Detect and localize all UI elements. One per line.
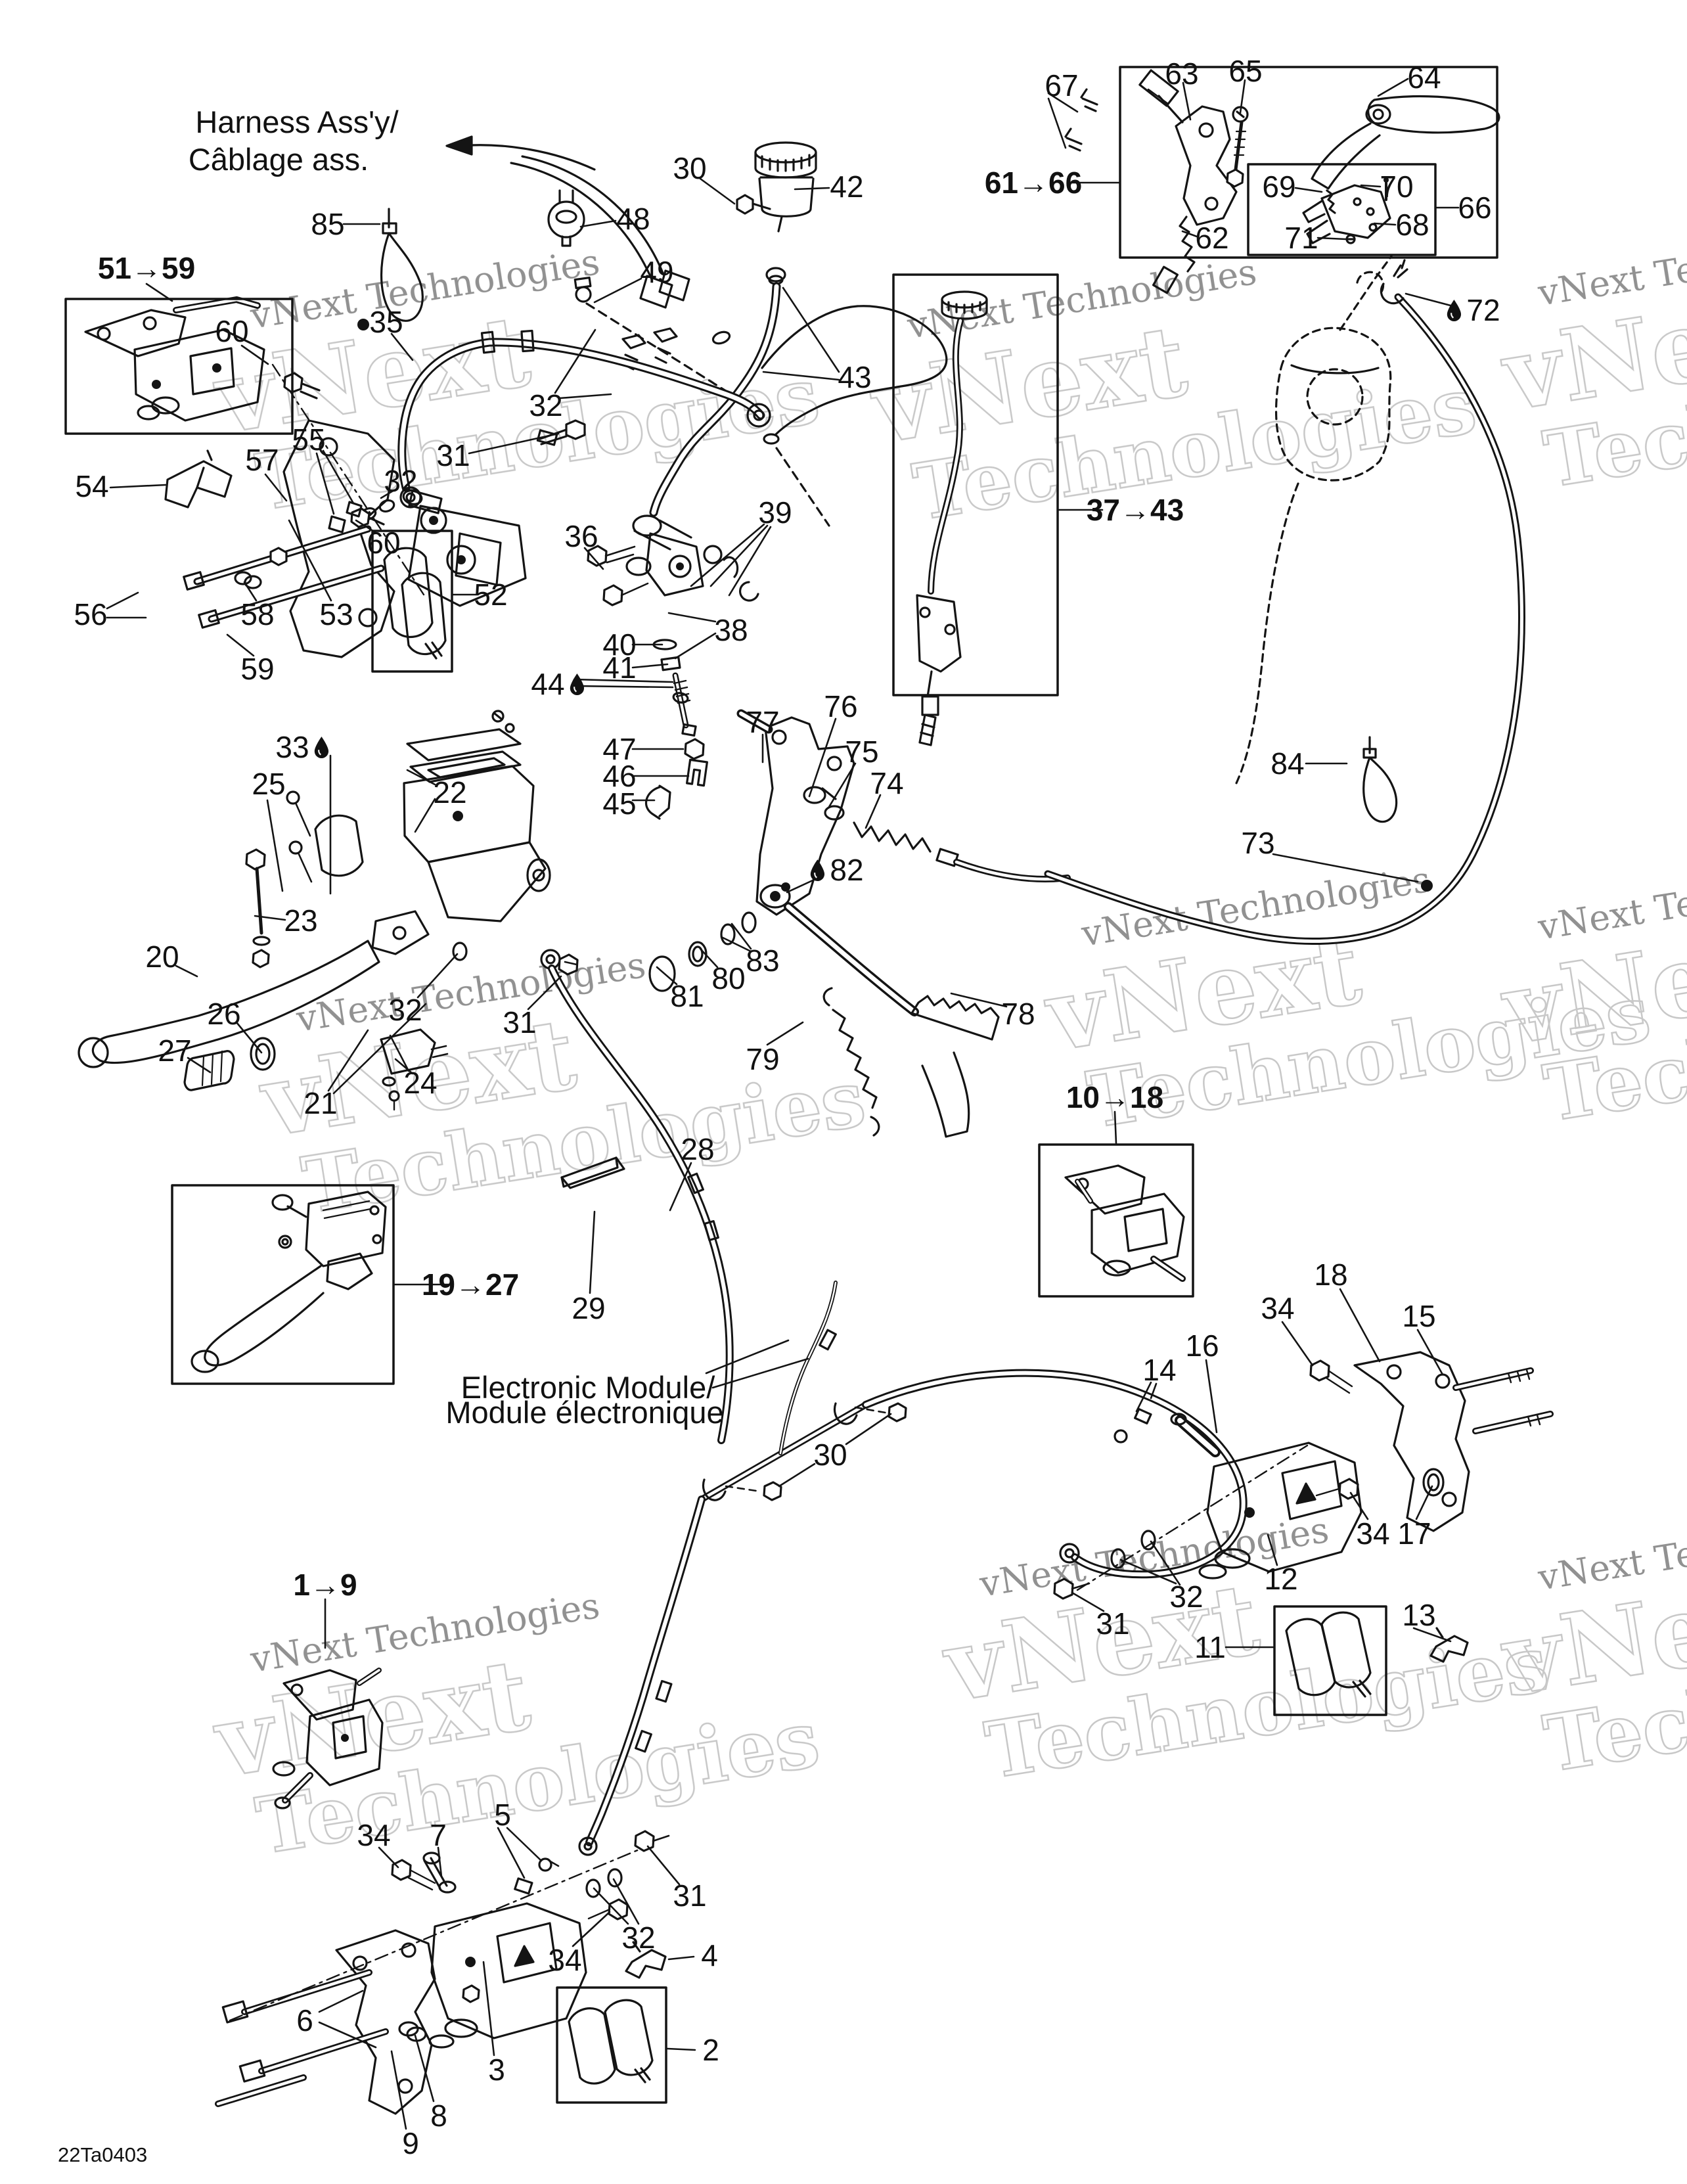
part-label-80: 80 bbox=[711, 963, 745, 993]
part-label-63: 63 bbox=[1165, 58, 1198, 89]
part-label-39: 39 bbox=[758, 497, 792, 528]
module-line-art bbox=[702, 1283, 1244, 1574]
watermark-5: vNext TechnologiesvNextTechnologies bbox=[1488, 821, 1687, 1144]
clip-54-art bbox=[166, 451, 231, 507]
part-label-33: 33 bbox=[275, 732, 330, 762]
part-label-43: 43 bbox=[838, 362, 871, 392]
oil-droplet-icon bbox=[1445, 299, 1462, 321]
oil-droplet-icon bbox=[809, 859, 826, 881]
part-label-14: 14 bbox=[1142, 1355, 1176, 1385]
part-label-48: 48 bbox=[616, 204, 650, 234]
part-label-62: 62 bbox=[1195, 223, 1228, 253]
part-label-21: 21 bbox=[304, 1088, 337, 1118]
watermark-2: vNext TechnologiesvNextTechnologies bbox=[1488, 187, 1687, 510]
part-label-16: 16 bbox=[1185, 1331, 1219, 1361]
part-label-35: 35 bbox=[369, 307, 403, 337]
part-label-83: 83 bbox=[746, 945, 779, 976]
part-label-31c: 31 bbox=[1096, 1608, 1129, 1639]
part-label-29: 29 bbox=[572, 1293, 605, 1323]
oil-droplet-icon bbox=[569, 673, 586, 695]
part-label-8: 8 bbox=[430, 2101, 447, 2131]
watermark-0: vNext TechnologiesvNextTechnologies bbox=[200, 210, 825, 533]
part-label-31d: 31 bbox=[673, 1880, 706, 1911]
pads-52-art bbox=[384, 548, 445, 658]
part-label-17: 17 bbox=[1397, 1518, 1431, 1549]
part-label-74: 74 bbox=[870, 768, 903, 798]
part-label-34c: 34 bbox=[357, 1820, 390, 1850]
part-label-26: 26 bbox=[207, 999, 240, 1029]
part-label-30a: 30 bbox=[673, 153, 706, 183]
part-label-15: 15 bbox=[1402, 1301, 1435, 1331]
part-label-34b: 34 bbox=[1356, 1518, 1389, 1549]
part-label-13: 13 bbox=[1402, 1600, 1435, 1630]
part-label-72: 72 bbox=[1445, 295, 1500, 325]
part-label-4: 4 bbox=[701, 1940, 718, 1970]
diagram-artwork: vNext TechnologiesvNextTechnologiesvNext… bbox=[0, 0, 1687, 2184]
part-label-67: 67 bbox=[1045, 70, 1078, 101]
part-label-49: 49 bbox=[640, 257, 673, 287]
front-caliper-bottom-art bbox=[218, 1831, 669, 2114]
part-label-81: 81 bbox=[670, 981, 704, 1011]
part-label-37-43: 37→43 bbox=[1087, 495, 1184, 525]
harness-title-line2: Câblage ass. bbox=[189, 142, 369, 177]
part-label-34a: 34 bbox=[1261, 1293, 1294, 1323]
part-label-78: 78 bbox=[1001, 999, 1035, 1029]
part-label-24: 24 bbox=[403, 1068, 437, 1098]
part-label-77: 77 bbox=[746, 707, 779, 737]
part-label-73: 73 bbox=[1241, 828, 1274, 858]
part-label-54: 54 bbox=[75, 471, 108, 501]
part-label-32a: 32 bbox=[529, 390, 562, 421]
part-label-1-9: 1→9 bbox=[293, 1570, 357, 1600]
part-label-79: 79 bbox=[746, 1044, 779, 1074]
part-label-2: 2 bbox=[702, 2035, 719, 2065]
part-label-11: 11 bbox=[1194, 1632, 1226, 1662]
part-label-53: 53 bbox=[319, 599, 353, 629]
part-label-85: 85 bbox=[311, 209, 344, 239]
part-label-64: 64 bbox=[1407, 62, 1441, 93]
part-label-42: 42 bbox=[830, 171, 863, 202]
watermark-8: vNext TechnologiesvNextTechnologies bbox=[1488, 1472, 1687, 1794]
part-label-58: 58 bbox=[240, 599, 274, 629]
part-label-12: 12 bbox=[1264, 1564, 1297, 1594]
part-label-84: 84 bbox=[1271, 748, 1304, 779]
switch-48-art bbox=[549, 191, 584, 246]
part-label-44: 44 bbox=[531, 669, 585, 699]
part-label-60b: 60 bbox=[367, 528, 400, 558]
part-label-20: 20 bbox=[145, 942, 179, 972]
part-label-70: 70 bbox=[1380, 171, 1413, 202]
part-label-61-66: 61→66 bbox=[985, 168, 1082, 198]
part-label-68: 68 bbox=[1395, 210, 1429, 240]
part-label-7: 7 bbox=[430, 1820, 447, 1850]
part-label-22: 22 bbox=[433, 777, 466, 808]
part-label-5: 5 bbox=[494, 1800, 511, 1830]
part-label-56: 56 bbox=[74, 599, 107, 629]
harness-title-line1: Harness Ass'y/ bbox=[195, 104, 398, 140]
part-label-3: 3 bbox=[488, 2055, 505, 2085]
part-label-32b: 32 bbox=[384, 466, 417, 496]
part-label-32e: 32 bbox=[621, 1922, 655, 1953]
part-label-31b: 31 bbox=[503, 1007, 536, 1037]
parking-housing-art bbox=[1236, 256, 1391, 783]
part-label-59: 59 bbox=[240, 654, 274, 684]
part-label-32c: 32 bbox=[388, 995, 422, 1025]
part-label-57: 57 bbox=[245, 445, 279, 475]
part-label-18: 18 bbox=[1314, 1260, 1347, 1290]
part-label-76: 76 bbox=[824, 691, 857, 721]
diagram-page: vNext TechnologiesvNextTechnologiesvNext… bbox=[0, 0, 1687, 2184]
part-label-69: 69 bbox=[1262, 171, 1295, 202]
diagram-code: 22Ta0403 bbox=[58, 2143, 147, 2167]
part-label-6: 6 bbox=[296, 2005, 313, 2036]
part-label-30b: 30 bbox=[813, 1440, 847, 1470]
part-label-9: 9 bbox=[402, 2128, 419, 2158]
part-label-65: 65 bbox=[1228, 56, 1262, 86]
pads-2-art bbox=[569, 2000, 652, 2083]
part-label-23: 23 bbox=[284, 905, 317, 936]
part-label-34d: 34 bbox=[548, 1945, 581, 1975]
part-label-71: 71 bbox=[1284, 223, 1318, 253]
box10-caliper-art bbox=[1066, 1166, 1184, 1279]
part-label-60a: 60 bbox=[215, 316, 248, 346]
part-label-45: 45 bbox=[602, 788, 636, 819]
part-label-28: 28 bbox=[681, 1134, 714, 1164]
part-label-27: 27 bbox=[158, 1035, 191, 1066]
part-label-66: 66 bbox=[1458, 193, 1491, 223]
part-label-31a: 31 bbox=[436, 440, 470, 470]
module-title-line2: Module électronique bbox=[445, 1395, 723, 1430]
part-label-25: 25 bbox=[252, 769, 285, 799]
part-label-10-18: 10→18 bbox=[1066, 1082, 1163, 1112]
oil-droplet-icon bbox=[313, 736, 330, 758]
part-label-36: 36 bbox=[564, 521, 598, 551]
reservoir-42-art bbox=[737, 143, 816, 284]
part-label-82: 82 bbox=[809, 855, 863, 885]
part-label-32d: 32 bbox=[1169, 1581, 1203, 1612]
part-label-51-59: 51→59 bbox=[98, 253, 195, 283]
part-label-75: 75 bbox=[845, 737, 878, 767]
part-label-19-27: 19→27 bbox=[422, 1269, 519, 1300]
part-label-52: 52 bbox=[474, 580, 507, 610]
part-label-38: 38 bbox=[714, 615, 748, 645]
part-label-55: 55 bbox=[292, 424, 325, 455]
part-label-41: 41 bbox=[602, 652, 636, 683]
watermark-6: vNext TechnologiesvNextTechnologies bbox=[200, 1554, 825, 1877]
